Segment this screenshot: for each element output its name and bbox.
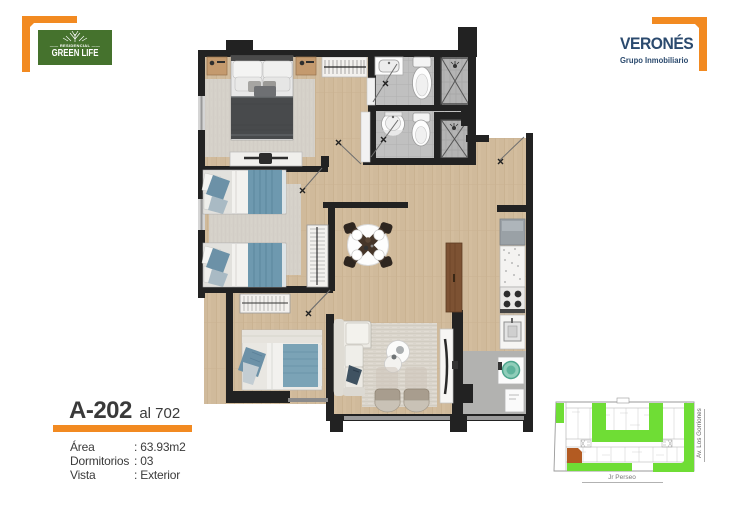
svg-text:Av. Los Gorriones: Av. Los Gorriones xyxy=(696,408,703,458)
svg-text:Jr Perseo: Jr Perseo xyxy=(608,474,636,481)
